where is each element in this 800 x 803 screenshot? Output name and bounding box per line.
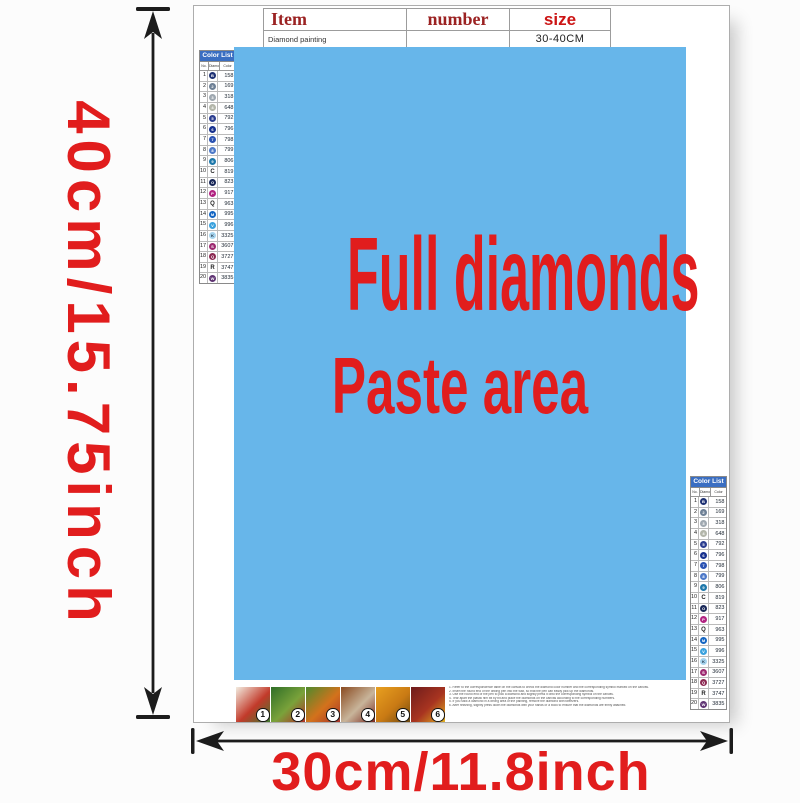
row-number: 10 — [691, 593, 699, 603]
color-list-row: 10C819 — [200, 167, 235, 178]
row-number: 19 — [691, 689, 699, 699]
diamond-symbol-cell: S — [208, 242, 218, 252]
diamond-symbol-cell: M — [699, 636, 709, 646]
diamond-symbol-cell: Q — [699, 625, 709, 635]
color-list-row: 12P917 — [691, 614, 726, 625]
dmc-color-code: 3835 — [709, 701, 726, 707]
diamond-symbol-cell: 7 — [208, 135, 218, 145]
color-list-row: 66796 — [691, 550, 726, 561]
dmc-color-code: 996 — [218, 222, 235, 228]
diamond-color-dot: M — [209, 211, 216, 218]
step-number-badge: 2 — [291, 708, 305, 722]
color-list-row: 77798 — [691, 561, 726, 572]
diamond-color-dot: 2 — [209, 83, 216, 90]
color-list-row: 14M995 — [200, 210, 235, 221]
row-number: 7 — [200, 135, 208, 145]
dmc-color-code: 169 — [218, 83, 235, 89]
row-number: 9 — [691, 582, 699, 592]
dmc-color-code: 792 — [709, 541, 726, 547]
color-list-row: 88799 — [691, 572, 726, 583]
diamond-symbol-cell: Q — [699, 678, 709, 688]
diamond-color-dot: C — [209, 168, 216, 175]
step-thumbnail: 4 — [341, 687, 375, 722]
diamond-symbol-cell: V — [208, 220, 218, 230]
diamond-color-dot: 9 — [209, 158, 216, 165]
diamond-color-dot: 6 — [209, 126, 216, 133]
color-list-column-headers: No.DiamondColor — [691, 488, 726, 497]
step-number-badge: 1 — [256, 708, 270, 722]
row-number: 13 — [691, 625, 699, 635]
arrow-shaft — [152, 33, 155, 693]
number-value-cell — [407, 31, 510, 48]
dmc-color-code: 3607 — [709, 669, 726, 675]
dmc-color-code: 819 — [709, 595, 726, 601]
color-list-row: 88799 — [200, 146, 235, 157]
diamond-color-dot: K — [209, 232, 216, 239]
dmc-color-code: 996 — [709, 648, 726, 654]
color-list-row: 99806 — [691, 582, 726, 593]
row-number: 5 — [200, 114, 208, 124]
dmc-color-code: 158 — [709, 499, 726, 505]
diamond-color-dot: W — [700, 701, 707, 708]
diamond-symbol-cell: K — [699, 657, 709, 667]
dmc-color-code: 799 — [218, 147, 235, 153]
diamond-color-dot: 8 — [700, 573, 707, 580]
color-list-row: 99806 — [200, 156, 235, 167]
row-number: 1 — [200, 71, 208, 81]
row-number: 16 — [691, 657, 699, 667]
step-number-badge: 5 — [396, 708, 410, 722]
diamond-symbol-cell: C — [208, 167, 218, 177]
dmc-color-code: 917 — [218, 190, 235, 196]
color-list-row: 20W3835 — [691, 699, 726, 709]
dmc-color-code: 169 — [709, 509, 726, 515]
diamond-color-dot: R — [209, 264, 216, 271]
dmc-color-code: 806 — [709, 584, 726, 590]
color-list-row: 19R3747 — [691, 689, 726, 700]
paste-area: Full diamonds Paste area — [234, 47, 686, 680]
diamond-symbol-cell: 3 — [699, 518, 709, 528]
color-list-row: 10C819 — [691, 593, 726, 604]
diamond-color-dot: O — [209, 179, 216, 186]
step-thumbnails: 123456 — [236, 687, 445, 722]
color-list-row: 20W3835 — [200, 273, 235, 283]
height-dimension-label: 40cm/15.75inch — [48, 54, 128, 674]
color-list-row: 18Q3727 — [691, 678, 726, 689]
diamond-color-dot: B — [700, 498, 707, 505]
diamond-color-dot: 5 — [209, 115, 216, 122]
color-list-left: Color ListNo.DiamondColor1B1582216933318… — [199, 50, 236, 284]
color-list-row: 22169 — [691, 508, 726, 519]
row-number: 20 — [691, 699, 699, 709]
dmc-color-code: 963 — [218, 201, 235, 207]
dmc-color-code: 995 — [709, 637, 726, 643]
color-list-column-header: Diamond — [700, 488, 711, 496]
color-list-row: 14M995 — [691, 636, 726, 647]
diamond-color-dot: 8 — [209, 147, 216, 154]
step-thumbnail: 5 — [376, 687, 410, 722]
dmc-color-code: 3607 — [218, 243, 235, 249]
diamond-symbol-cell: 5 — [208, 114, 218, 124]
color-list-column-header: Diamond — [209, 62, 220, 70]
row-number: 20 — [200, 273, 208, 283]
width-dimension-label: 30cm/11.8inch — [190, 741, 732, 803]
size-header: size — [510, 9, 611, 31]
diamond-color-dot: V — [209, 222, 216, 229]
dmc-color-code: 819 — [218, 169, 235, 175]
color-list-row: 17S3607 — [200, 242, 235, 253]
dmc-color-code: 318 — [709, 520, 726, 526]
row-number: 10 — [200, 167, 208, 177]
row-number: 3 — [200, 92, 208, 102]
diamond-color-dot: 4 — [700, 530, 707, 537]
color-list-row: 19R3747 — [200, 263, 235, 274]
row-number: 15 — [200, 220, 208, 230]
row-number: 13 — [200, 199, 208, 209]
diamond-symbol-cell: M — [208, 210, 218, 220]
diamond-symbol-cell: V — [699, 646, 709, 656]
diamond-symbol-cell: R — [208, 263, 218, 273]
dmc-color-code: 3325 — [709, 659, 726, 665]
diamond-symbol-cell: 2 — [208, 82, 218, 92]
row-number: 14 — [200, 210, 208, 220]
color-list-row: 55792 — [691, 540, 726, 551]
step-number-badge: 6 — [431, 708, 445, 722]
diamond-color-dot: M — [700, 637, 707, 644]
diamond-color-dot: Q — [700, 679, 707, 686]
diamond-color-dot: Q — [700, 626, 707, 633]
diamond-color-dot: V — [700, 648, 707, 655]
dmc-color-code: 798 — [709, 563, 726, 569]
row-number: 12 — [200, 188, 208, 198]
diamond-color-dot: C — [700, 594, 707, 601]
diamond-symbol-cell: P — [699, 614, 709, 624]
dmc-color-code: 806 — [218, 158, 235, 164]
color-list-row: 15V996 — [691, 646, 726, 657]
diamond-color-dot: W — [209, 275, 216, 282]
color-list-row: 66796 — [200, 124, 235, 135]
row-number: 16 — [200, 231, 208, 241]
diamond-color-dot: P — [209, 190, 216, 197]
diamond-color-dot: 7 — [209, 136, 216, 143]
row-number: 18 — [691, 678, 699, 688]
color-list-row: 13Q963 — [200, 199, 235, 210]
dmc-color-code: 796 — [709, 552, 726, 558]
bottom-cap — [136, 715, 170, 719]
dmc-color-code: 3325 — [218, 233, 235, 239]
diamond-color-dot: S — [209, 243, 216, 250]
diamond-symbol-cell: C — [699, 593, 709, 603]
number-header: number — [407, 9, 510, 31]
color-list-row: 17S3607 — [691, 668, 726, 679]
color-list-column-header: No. — [691, 488, 700, 496]
instructions-text: 1. Refer to the correspondence table on … — [449, 686, 687, 707]
diamond-color-dot: 3 — [209, 94, 216, 101]
dmc-color-code: 3747 — [709, 691, 726, 697]
diamond-color-dot: 5 — [700, 541, 707, 548]
color-list-row: 22169 — [200, 82, 235, 93]
item-table-header-row: Item number size — [264, 9, 611, 31]
color-list-row: 44648 — [691, 529, 726, 540]
diamond-symbol-cell: 4 — [699, 529, 709, 539]
diamond-color-dot: P — [700, 616, 707, 623]
diamond-symbol-cell: 2 — [699, 508, 709, 518]
row-number: 14 — [691, 636, 699, 646]
color-list-row: 16K3325 — [200, 231, 235, 242]
color-list-row: 15V996 — [200, 220, 235, 231]
color-list-row: 16K3325 — [691, 657, 726, 668]
row-number: 11 — [691, 604, 699, 614]
diamond-color-dot: B — [209, 72, 216, 79]
instruction-line: 6. After finishing, slightly press down … — [449, 704, 687, 708]
row-number: 17 — [691, 668, 699, 678]
color-list-row: 55792 — [200, 114, 235, 125]
color-list-row: 11O823 — [200, 178, 235, 189]
diamond-symbol-cell: S — [699, 668, 709, 678]
color-list-row: 12P917 — [200, 188, 235, 199]
row-number: 11 — [200, 178, 208, 188]
size-value-cell: 30-40CM — [510, 31, 611, 48]
diamond-symbol-cell: Q — [208, 252, 218, 262]
diamond-symbol-cell: W — [699, 699, 709, 709]
diamond-color-dot: 7 — [700, 562, 707, 569]
diamond-symbol-cell: O — [208, 178, 218, 188]
diamond-color-dot: O — [700, 605, 707, 612]
dmc-color-code: 823 — [218, 179, 235, 185]
dmc-color-code: 823 — [709, 605, 726, 611]
canvas-sheet: Item number size Diamond painting 30-40C… — [193, 5, 730, 723]
product-name-cell: Diamond painting — [264, 31, 407, 48]
diamond-symbol-cell: 9 — [208, 156, 218, 166]
row-number: 2 — [200, 82, 208, 92]
row-number: 15 — [691, 646, 699, 656]
diamond-color-dot: Q — [209, 253, 216, 260]
diamond-symbol-cell: 7 — [699, 561, 709, 571]
diamond-symbol-cell: O — [699, 604, 709, 614]
diamond-symbol-cell: B — [208, 71, 218, 81]
color-list-row: 13Q963 — [691, 625, 726, 636]
row-number: 9 — [200, 156, 208, 166]
row-number: 8 — [200, 146, 208, 156]
diamond-symbol-cell: P — [208, 188, 218, 198]
diamond-symbol-cell: B — [699, 497, 709, 507]
dmc-color-code: 796 — [218, 126, 235, 132]
row-number: 8 — [691, 572, 699, 582]
diamond-color-dot: 4 — [209, 104, 216, 111]
item-table-value-row: Diamond painting 30-40CM — [264, 31, 611, 48]
row-number: 6 — [200, 124, 208, 134]
color-list-right: Color ListNo.DiamondColor1B1582216933318… — [690, 476, 727, 710]
row-number: 6 — [691, 550, 699, 560]
row-number: 5 — [691, 540, 699, 550]
diamond-symbol-cell: 6 — [699, 550, 709, 560]
dmc-color-code: 648 — [218, 105, 235, 111]
dmc-color-code: 963 — [709, 627, 726, 633]
product-size-diagram: 40cm/15.75inch Item number size Diamond … — [0, 0, 800, 800]
paste-area-title: Full diamonds — [347, 223, 573, 327]
dmc-color-code: 798 — [218, 137, 235, 143]
paste-area-subtitle: Paste area — [315, 346, 604, 426]
diamond-symbol-cell: 8 — [699, 572, 709, 582]
color-list-row: 18Q3727 — [200, 252, 235, 263]
dmc-color-code: 3727 — [218, 254, 235, 260]
row-number: 4 — [691, 529, 699, 539]
row-number: 18 — [200, 252, 208, 262]
diamond-symbol-cell: Q — [208, 199, 218, 209]
dmc-color-code: 792 — [218, 115, 235, 121]
color-list-row: 11O823 — [691, 604, 726, 615]
top-cap — [136, 7, 170, 11]
color-list-row: 44648 — [200, 103, 235, 114]
row-number: 12 — [691, 614, 699, 624]
step-thumbnail: 2 — [271, 687, 305, 722]
color-list-column-header: Color — [220, 62, 235, 70]
diamond-symbol-cell: K — [208, 231, 218, 241]
row-number: 2 — [691, 508, 699, 518]
item-header: Item — [264, 9, 407, 31]
dmc-color-code: 3727 — [709, 680, 726, 686]
color-list-title: Color List — [691, 477, 726, 488]
diamond-color-dot: 3 — [700, 520, 707, 527]
color-list-title: Color List — [200, 51, 235, 62]
color-list-column-header: No. — [200, 62, 209, 70]
diamond-color-dot: 2 — [700, 509, 707, 516]
diamond-symbol-cell: 4 — [208, 103, 218, 113]
color-list-row: 77798 — [200, 135, 235, 146]
diamond-color-dot: R — [700, 690, 707, 697]
diamond-symbol-cell: 3 — [208, 92, 218, 102]
step-number-badge: 4 — [361, 708, 375, 722]
row-number: 19 — [200, 263, 208, 273]
row-number: 7 — [691, 561, 699, 571]
diamond-symbol-cell: 6 — [208, 124, 218, 134]
dmc-color-code: 917 — [709, 616, 726, 622]
diamond-color-dot: 9 — [700, 584, 707, 591]
diamond-symbol-cell: 5 — [699, 540, 709, 550]
diamond-color-dot: K — [700, 658, 707, 665]
diamond-symbol-cell: W — [208, 273, 218, 283]
dmc-color-code: 3747 — [218, 265, 235, 271]
height-dimension-arrow — [133, 7, 173, 719]
diamond-color-dot: S — [700, 669, 707, 676]
item-info-table: Item number size Diamond painting 30-40C… — [263, 8, 611, 48]
dmc-color-code: 158 — [218, 73, 235, 79]
dmc-color-code: 648 — [709, 531, 726, 537]
color-list-column-header: Color — [711, 488, 726, 496]
dmc-color-code: 3835 — [218, 275, 235, 281]
color-list-row: 33318 — [200, 92, 235, 103]
dmc-color-code: 995 — [218, 211, 235, 217]
dmc-color-code: 318 — [218, 94, 235, 100]
row-number: 3 — [691, 518, 699, 528]
diamond-color-dot: Q — [209, 200, 216, 207]
dmc-color-code: 799 — [709, 573, 726, 579]
step-thumbnail: 1 — [236, 687, 270, 722]
color-list-row: 1B158 — [200, 71, 235, 82]
step-number-badge: 3 — [326, 708, 340, 722]
color-list-column-headers: No.DiamondColor — [200, 62, 235, 71]
diamond-symbol-cell: R — [699, 689, 709, 699]
row-number: 4 — [200, 103, 208, 113]
color-list-row: 1B158 — [691, 497, 726, 508]
row-number: 17 — [200, 242, 208, 252]
diamond-symbol-cell: 9 — [699, 582, 709, 592]
step-thumbnail: 3 — [306, 687, 340, 722]
color-list-row: 33318 — [691, 518, 726, 529]
row-number: 1 — [691, 497, 699, 507]
diamond-color-dot: 6 — [700, 552, 707, 559]
diamond-symbol-cell: 8 — [208, 146, 218, 156]
step-thumbnail: 6 — [411, 687, 445, 722]
